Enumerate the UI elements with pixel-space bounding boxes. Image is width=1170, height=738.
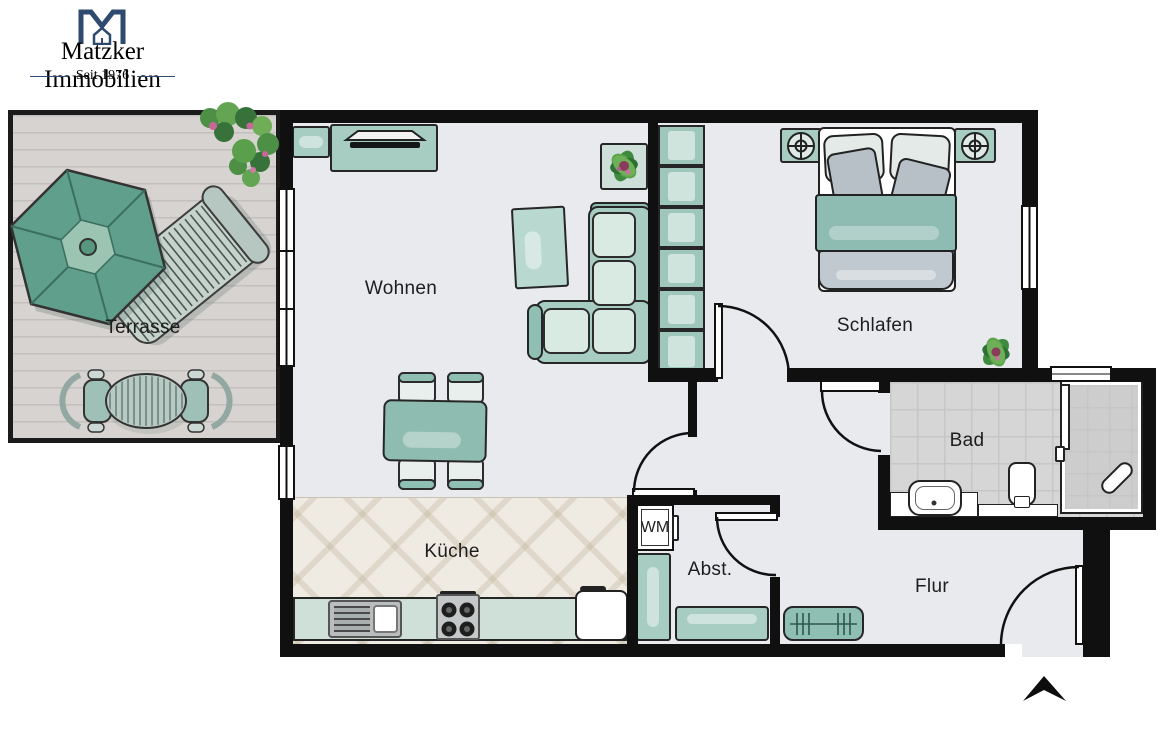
terrace-chair [62,370,111,432]
room-label-terrasse: Terrasse [73,317,213,339]
floor-plan: Matzker Immobilien Seit 1976 [0,0,1170,738]
room-label-kueche: Küche [382,541,522,563]
bathroom-door-arc [822,391,881,451]
north-arrow-icon [1023,676,1066,701]
potted-plant-icon [973,328,1019,375]
tv-icon [346,131,424,148]
terrace-chair [181,370,230,432]
entrance-door-arc [1001,567,1079,644]
bedside-lamp-icon [788,133,814,159]
terrace-plant-icon [200,102,279,187]
plan-overlay [0,0,1170,738]
room-label-bad: Bad [897,430,1037,452]
bedroom-door-arc [718,306,789,377]
room-label-schlafen: Schlafen [805,315,945,337]
room-label-abstellraum: Abst. [640,559,780,581]
hall-bench-slats [790,613,857,635]
room-label-wohnen: Wohnen [331,278,471,300]
stove-burners-icon [442,603,475,637]
bedside-lamp-icon [962,133,988,159]
room-label-flur: Flur [862,576,1002,598]
washbasin-drain [932,501,937,506]
living-door-arc [634,433,693,492]
terrace-table-set [62,370,229,434]
potted-plant-icon [607,148,641,184]
